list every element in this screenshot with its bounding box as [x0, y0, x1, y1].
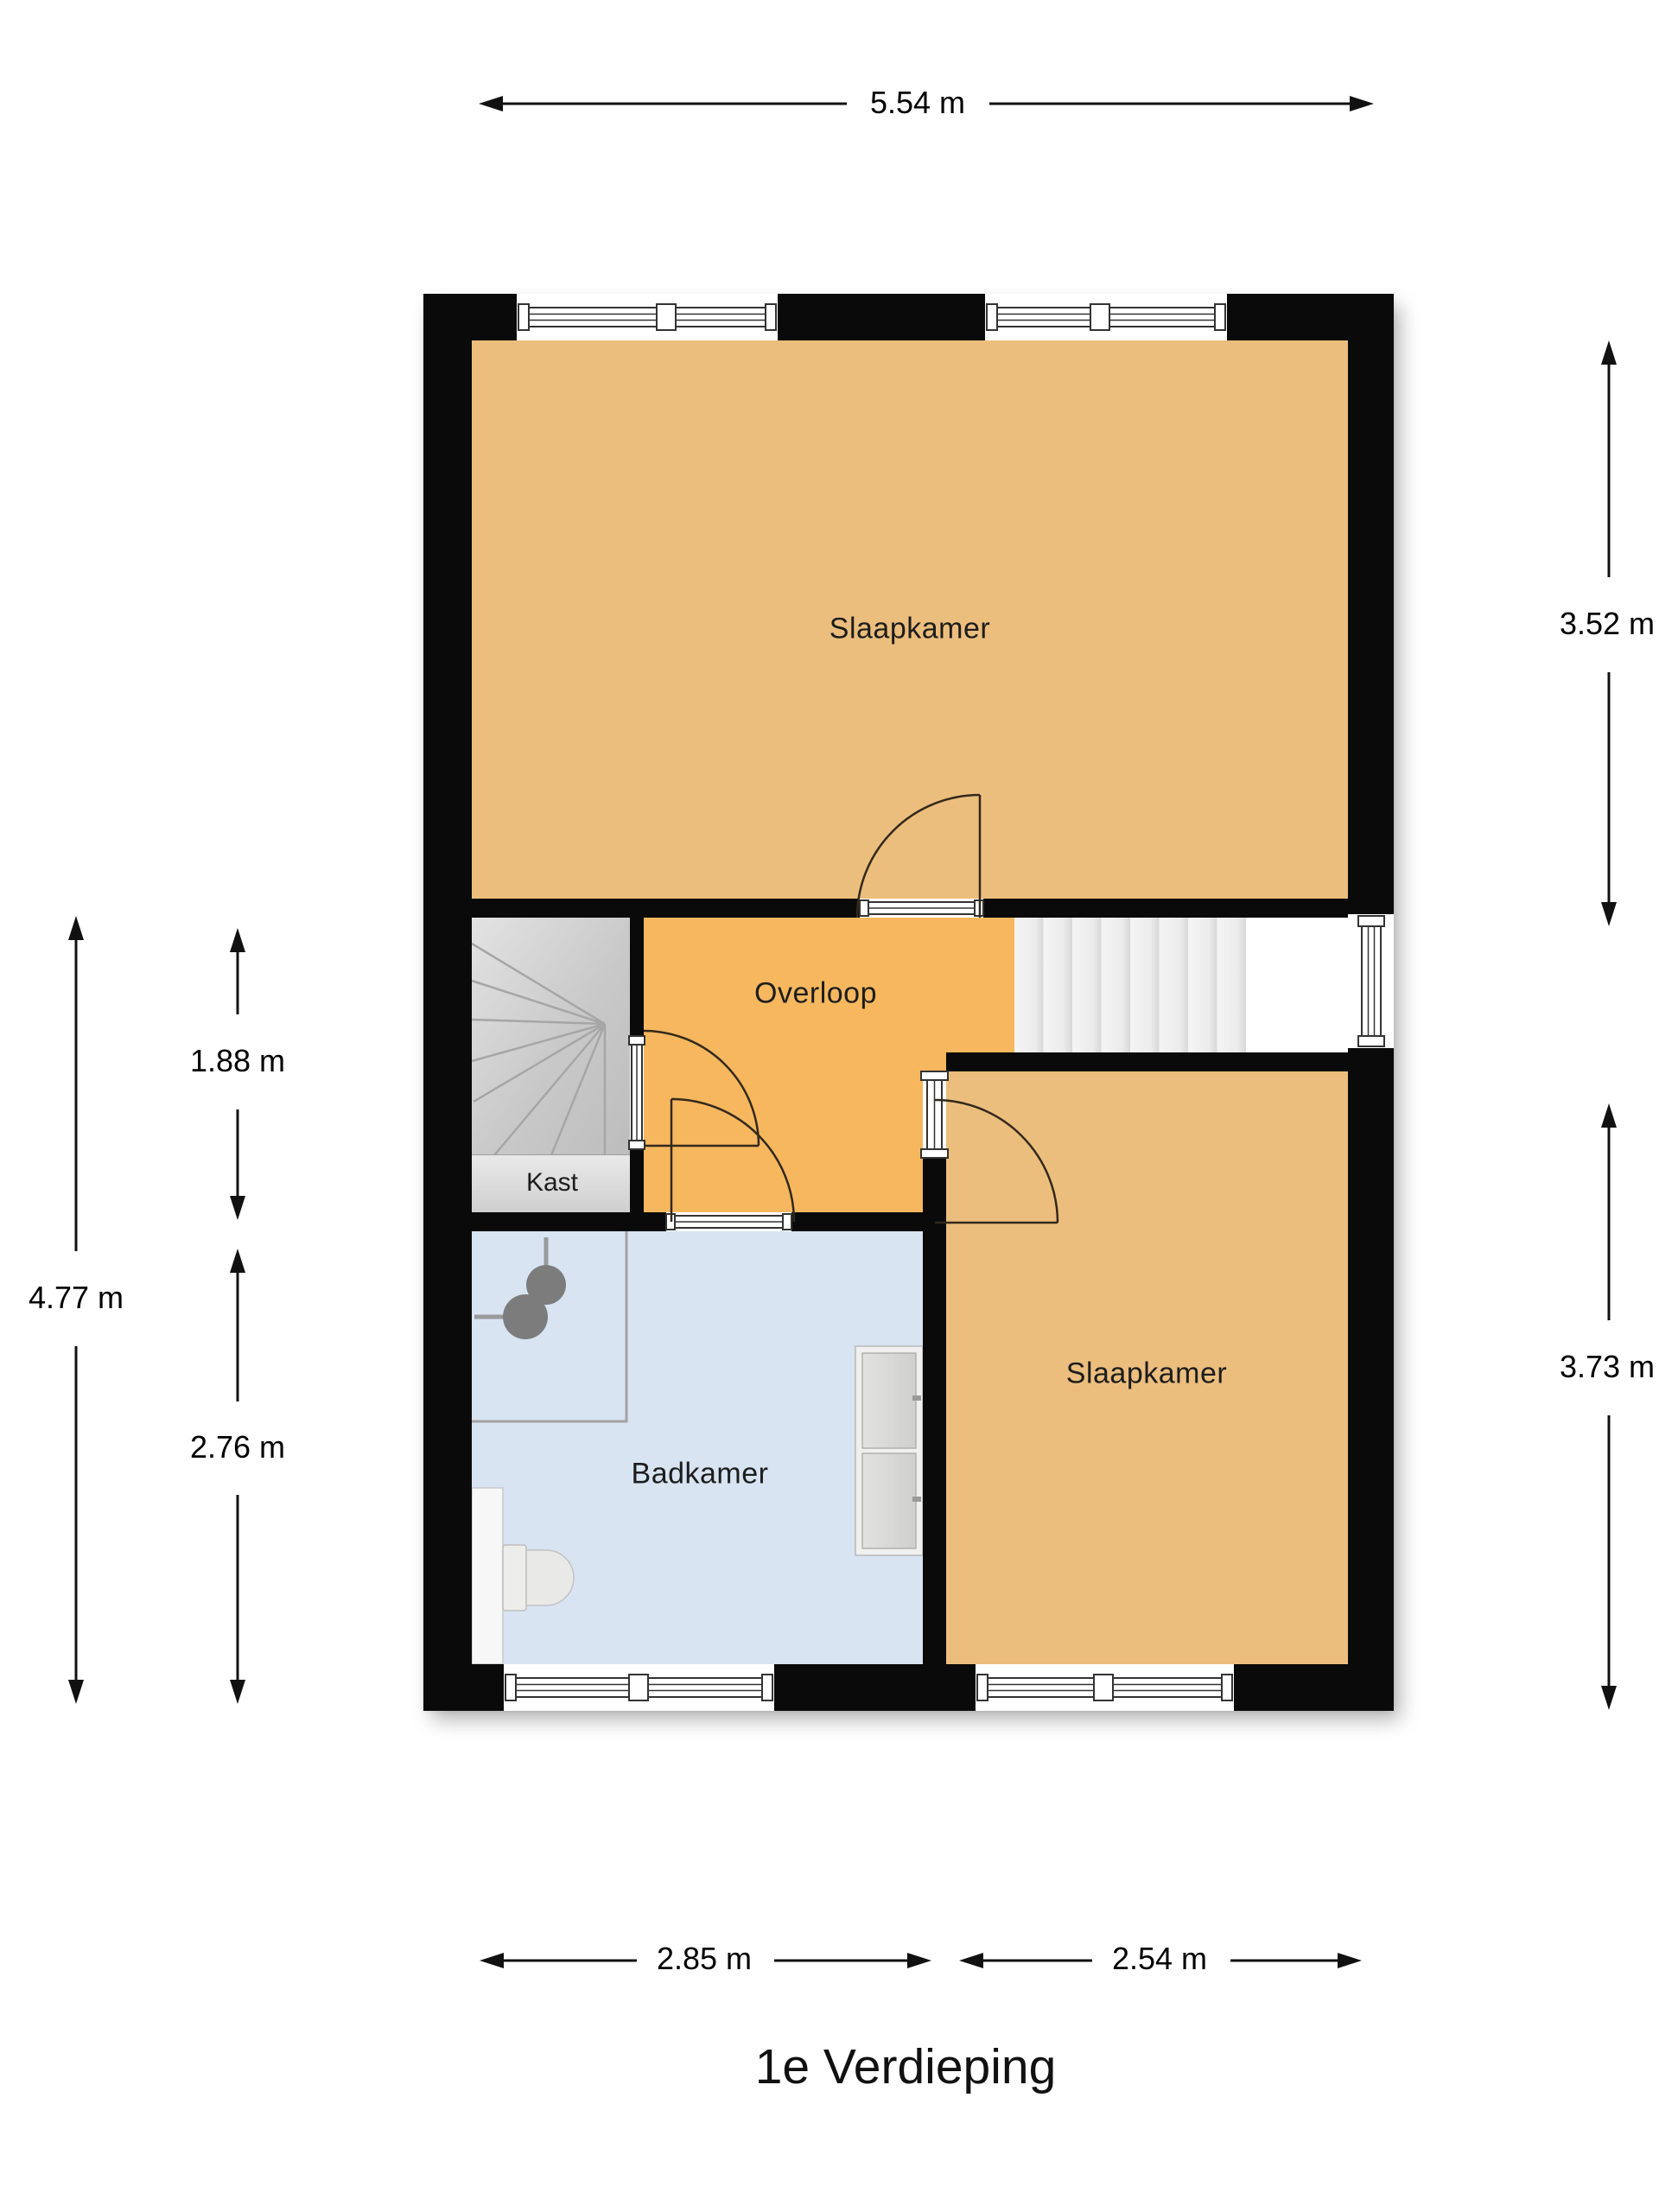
window-bottom-left [504, 1664, 774, 1711]
stairwell-landing [1246, 914, 1348, 1052]
winder-stairs-icon [472, 914, 630, 1155]
wall-below-stairs [946, 1052, 1348, 1071]
dim-label-right-top: 3.52 m [1560, 606, 1655, 642]
dim-line-right-bottom [1601, 1103, 1617, 1710]
window-right [1348, 914, 1394, 1048]
door-frame-stairs [629, 1036, 645, 1149]
storage-cabinet-icon [855, 1346, 923, 1555]
wall-below-bedroom-right [983, 899, 1348, 918]
dim-line-left-lower [230, 1249, 245, 1704]
wall-bathroom-bedroom [923, 1071, 946, 1664]
straight-stairs-icon [1014, 914, 1246, 1052]
dim-label-top-width: 5.54 m [870, 85, 965, 121]
dim-label-bottom-right: 2.54 m [1112, 1941, 1207, 1977]
window-bottom-right [976, 1664, 1234, 1711]
dim-label-left-upper: 1.88 m [190, 1043, 285, 1079]
window-top-right [985, 294, 1227, 340]
door-threshold-bathroom [666, 1212, 791, 1231]
wall-above-bathroom-left [472, 1212, 666, 1231]
dim-label-bottom-left: 2.85 m [657, 1941, 752, 1977]
room-label-landing: Overloop [754, 977, 877, 1011]
door-frame-bedroom-right [921, 1071, 948, 1158]
wall-above-bathroom-right [791, 1212, 946, 1231]
room-label-bedroom-right: Slaapkamer [1066, 1357, 1227, 1391]
door-threshold-bedroom-top [860, 899, 983, 918]
dim-label-left-lower: 2.76 m [190, 1429, 285, 1465]
vanity [472, 1488, 503, 1664]
room-label-bathroom: Badkamer [632, 1458, 769, 1491]
room-label-bedroom-top: Slaapkamer [829, 613, 990, 646]
dim-label-right-bottom: 3.73 m [1560, 1349, 1655, 1385]
floor-plan-drawing [0, 0, 1659, 2212]
window-top-left [517, 294, 778, 340]
wall-below-bedroom-left [472, 899, 860, 918]
dim-label-left-total: 4.77 m [29, 1280, 124, 1316]
page-title: 1e Verdieping [755, 2038, 1057, 2095]
floor-plan-page: Slaapkamer Overloop Kast Badkamer Slaapk… [0, 0, 1659, 2212]
room-label-closet: Kast [526, 1168, 578, 1198]
